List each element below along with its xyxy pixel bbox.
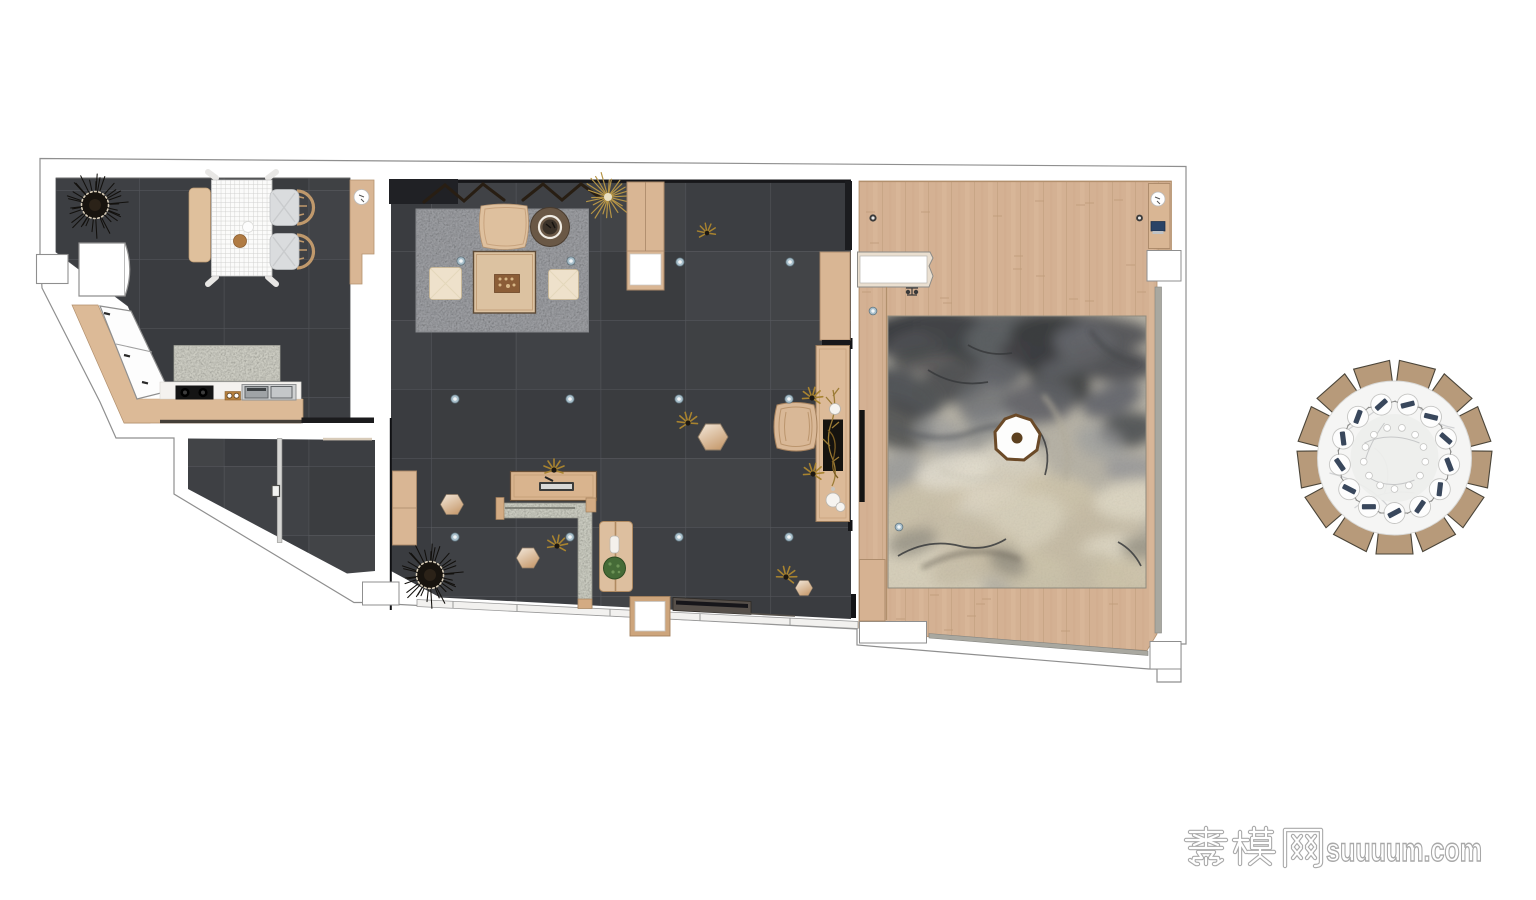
svg-text:suuuum.com: suuuum.com (1326, 831, 1482, 868)
